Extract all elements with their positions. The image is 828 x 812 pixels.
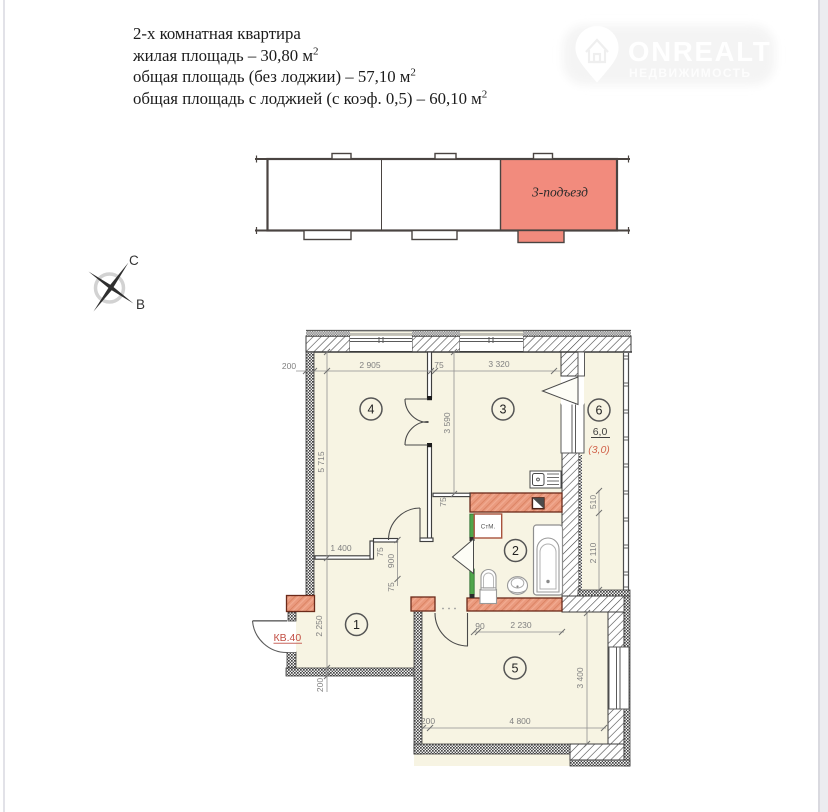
svg-text:3: 3	[500, 403, 507, 417]
svg-text:90: 90	[475, 621, 485, 631]
svg-text:1: 1	[353, 618, 360, 632]
svg-text:510: 510	[588, 495, 598, 509]
svg-text:3 400: 3 400	[575, 667, 585, 689]
svg-text:С: С	[129, 253, 139, 268]
svg-text:3 320: 3 320	[488, 359, 510, 369]
svg-text:3-подъезд: 3-подъезд	[531, 185, 588, 200]
svg-text:ONREALT: ONREALT	[628, 36, 771, 67]
svg-text:КВ.40: КВ.40	[274, 632, 302, 644]
svg-text:2 250: 2 250	[314, 615, 324, 637]
svg-text:75: 75	[386, 582, 396, 592]
svg-text:В: В	[136, 297, 145, 312]
svg-text:2 905: 2 905	[359, 360, 381, 370]
svg-text:6,0: 6,0	[593, 426, 608, 438]
svg-text:3 590: 3 590	[442, 412, 452, 434]
svg-text:(3,0): (3,0)	[588, 444, 610, 456]
svg-text:200: 200	[421, 716, 435, 726]
svg-text:6: 6	[596, 404, 603, 418]
svg-text:5 715: 5 715	[316, 451, 326, 473]
svg-text:200: 200	[315, 678, 325, 692]
svg-text:75: 75	[434, 360, 444, 370]
svg-text:НЕДВИЖИМОСТЬ: НЕДВИЖИМОСТЬ	[629, 66, 751, 80]
svg-text:75: 75	[375, 547, 385, 557]
svg-text:4: 4	[368, 403, 375, 417]
svg-text:2 230: 2 230	[510, 620, 532, 630]
svg-text:2: 2	[512, 544, 519, 558]
svg-text:5: 5	[512, 662, 519, 676]
svg-text:1 400: 1 400	[330, 543, 352, 553]
svg-text:4 800: 4 800	[509, 716, 531, 726]
svg-text:200: 200	[282, 361, 296, 371]
svg-text:СтМ.: СтМ.	[481, 524, 496, 531]
svg-text:75: 75	[438, 497, 448, 507]
svg-text:900: 900	[386, 554, 396, 568]
svg-text:2 110: 2 110	[588, 542, 598, 563]
